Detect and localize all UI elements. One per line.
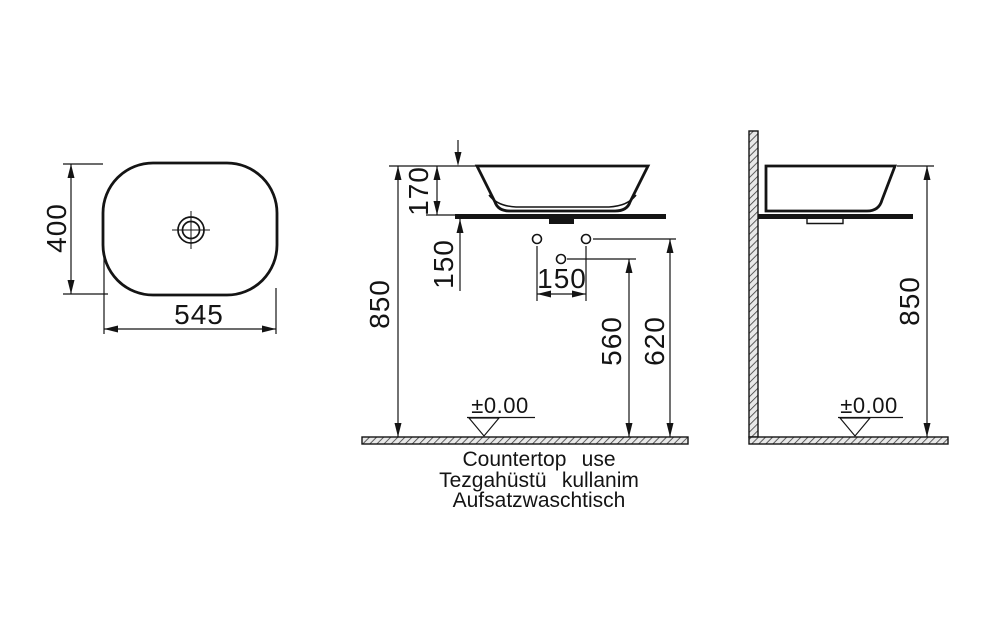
caption-line-turkish: Tezgahüstü kullanim <box>439 471 639 492</box>
caption-line-english: Countertop use <box>439 450 639 471</box>
dim-label-top-height: 400 <box>43 203 71 253</box>
dim-850-front-lines <box>395 166 402 437</box>
drain-stub-front <box>549 219 574 225</box>
datum-marker-front <box>467 418 535 437</box>
datum-marker-side <box>838 418 903 437</box>
dim-label-hole-spacing: 150 <box>537 265 587 293</box>
supply-hole-right <box>582 235 591 244</box>
supply-hole-left <box>533 235 542 244</box>
floor-front <box>362 437 688 444</box>
dim-170-lines <box>434 166 441 215</box>
caption-line-german: Aufsatzwaschtisch <box>439 491 639 512</box>
datum-label-side: ±0.00 <box>840 395 897 417</box>
drain-stub-side <box>807 219 843 224</box>
drawing-canvas <box>0 0 1000 642</box>
dim-label-drain-hole-height: 560 <box>598 316 626 366</box>
washbasin-technical-drawing: 400 545 170 850 150 150 560 620 ±0.00 85… <box>0 0 1000 642</box>
dim-label-top-width: 545 <box>174 301 224 329</box>
dim-label-supply-hole-height: 620 <box>641 316 669 366</box>
basin-side-profile <box>766 166 895 211</box>
datum-label-front: ±0.00 <box>471 395 528 417</box>
wall <box>749 131 758 437</box>
dim-label-rim-height: 170 <box>405 166 433 216</box>
basin-oval-outline <box>103 163 277 295</box>
dim-label-countertop-to-hole: 150 <box>430 239 458 289</box>
floor-side <box>749 437 948 444</box>
dim-label-front-total-height: 850 <box>366 279 394 329</box>
dim-label-side-total-height: 850 <box>896 276 924 326</box>
top-view <box>63 163 277 334</box>
caption-block: Countertop use Tezgahüstü kullanim Aufsa… <box>439 450 639 512</box>
